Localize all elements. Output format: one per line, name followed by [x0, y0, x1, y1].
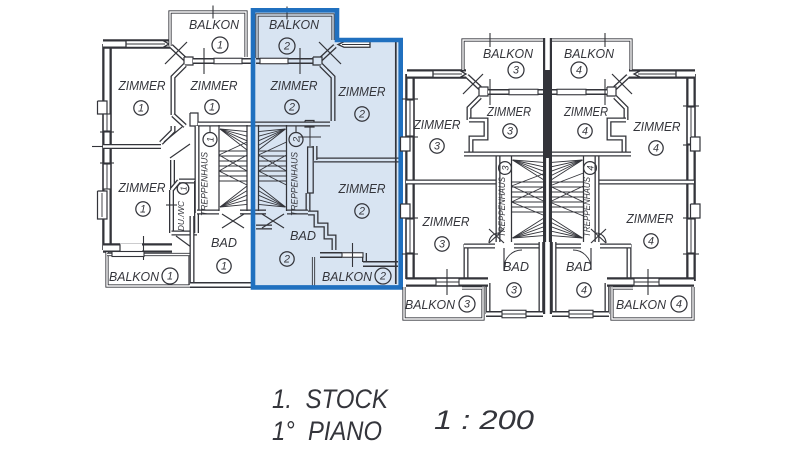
svg-text:3: 3: [464, 299, 470, 311]
svg-text:TREPPENHAUS: TREPPENHAUS: [289, 151, 300, 216]
svg-text:ZIMMER: ZIMMER: [118, 180, 166, 195]
svg-text:ZIMMER: ZIMMER: [338, 84, 386, 99]
svg-text:1: 1: [206, 137, 217, 142]
svg-text:2: 2: [292, 136, 303, 143]
svg-text:ZIMMER: ZIMMER: [422, 214, 470, 229]
svg-text:2: 2: [379, 271, 386, 283]
svg-text:ZIMMER: ZIMMER: [626, 211, 674, 226]
svg-text:1: 1: [221, 261, 227, 273]
svg-text:1: 1: [138, 103, 144, 115]
svg-text:BALKON: BALKON: [616, 297, 666, 312]
svg-text:2: 2: [283, 41, 290, 53]
svg-text:1: 1: [209, 102, 215, 114]
svg-text:BALKON: BALKON: [269, 17, 319, 32]
svg-text:4: 4: [648, 236, 654, 248]
svg-text:3: 3: [501, 165, 511, 171]
svg-text:ZIMMER: ZIMMER: [563, 105, 608, 119]
svg-text:TREPPENHAUS: TREPPENHAUS: [497, 176, 507, 237]
svg-text:1: 1: [217, 40, 223, 52]
svg-text:ZIMMER: ZIMMER: [118, 78, 166, 93]
svg-text:BAD: BAD: [566, 259, 592, 274]
svg-text:4: 4: [653, 143, 659, 155]
svg-text:1. STOCK: 1. STOCK: [272, 384, 389, 414]
svg-text:BALKON: BALKON: [322, 269, 372, 284]
svg-text:2: 2: [358, 109, 365, 121]
svg-text:1: 1: [179, 186, 189, 191]
svg-text:4: 4: [676, 299, 682, 311]
svg-text:BAD: BAD: [211, 235, 237, 250]
svg-text:BALKON: BALKON: [564, 46, 614, 61]
svg-text:TREPPENHAUS: TREPPENHAUS: [582, 176, 592, 237]
svg-text:ZIMMER: ZIMMER: [270, 78, 318, 93]
svg-text:2: 2: [358, 206, 365, 218]
svg-text:3: 3: [507, 126, 513, 138]
svg-text:1 : 200: 1 : 200: [434, 405, 534, 435]
svg-text:3: 3: [439, 239, 445, 251]
svg-text:1° PIANO: 1° PIANO: [272, 416, 382, 446]
svg-text:BALKON: BALKON: [483, 46, 533, 61]
svg-text:3: 3: [513, 65, 519, 77]
svg-text:BALKON: BALKON: [405, 297, 455, 312]
svg-text:1: 1: [167, 271, 173, 283]
svg-text:4: 4: [586, 165, 596, 170]
svg-text:BALKON: BALKON: [189, 17, 239, 32]
svg-text:3: 3: [511, 285, 517, 297]
svg-text:ZIMMER: ZIMMER: [338, 181, 386, 196]
svg-text:ZIMMER: ZIMMER: [633, 119, 681, 134]
svg-text:1: 1: [140, 204, 146, 216]
svg-text:ZIMMER: ZIMMER: [413, 117, 461, 132]
svg-text:3: 3: [434, 141, 440, 153]
svg-text:ZIMMER: ZIMMER: [486, 105, 531, 119]
svg-text:BAD: BAD: [290, 228, 316, 243]
svg-text:4: 4: [582, 126, 588, 138]
svg-text:4: 4: [576, 65, 582, 77]
svg-text:ZIMMER: ZIMMER: [190, 78, 238, 93]
svg-text:TREPPENHAUS: TREPPENHAUS: [199, 151, 210, 216]
svg-text:BALKON: BALKON: [109, 269, 159, 284]
svg-text:2: 2: [288, 102, 295, 114]
svg-text:2: 2: [283, 254, 290, 266]
svg-text:DU./WC: DU./WC: [177, 201, 186, 231]
svg-text:4: 4: [581, 285, 587, 297]
svg-text:BAD: BAD: [503, 259, 529, 274]
